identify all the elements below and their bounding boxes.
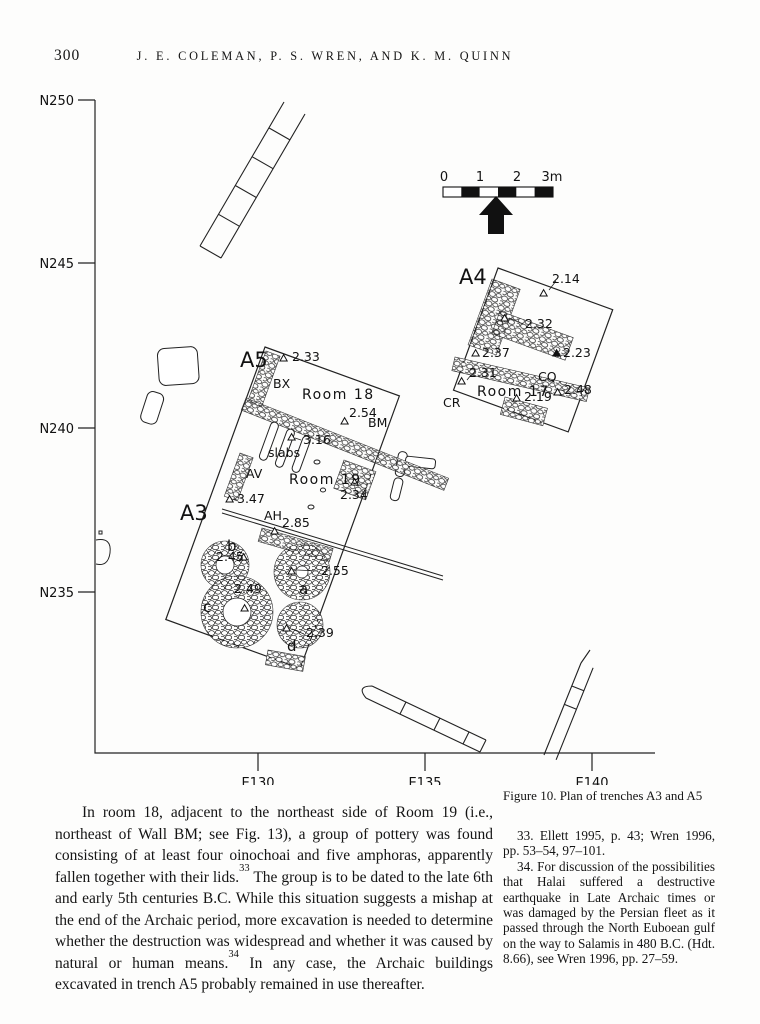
label-wall-cr: CR	[443, 395, 461, 410]
elevation-3.16: 3.16	[303, 432, 331, 447]
elevation-2.49: 2.49	[234, 581, 262, 596]
trench-a5-walls	[224, 351, 448, 562]
north-arrow-icon	[479, 196, 513, 234]
scale-2: 2	[513, 170, 521, 185]
label-wall-av: AV	[246, 466, 263, 481]
elevation-2.54: 2.54	[349, 405, 377, 420]
axis-label-n235: N235	[39, 586, 74, 601]
label-wall-cq: CQ	[538, 369, 557, 384]
body-paragraph: In room 18, adjacent to the northeast si…	[55, 802, 493, 996]
label-room-18: Room 18	[302, 387, 375, 403]
label-room-19: Room 19	[289, 472, 362, 488]
scale-3m: 3m	[542, 170, 563, 185]
wall-blocks-north	[200, 102, 305, 258]
baulk-mark	[96, 531, 110, 565]
elevation-2.45: 2.45	[216, 549, 244, 564]
axis-label-e135: E135	[408, 776, 441, 785]
axis-label-n250: N250	[39, 94, 74, 109]
axis-label-e140: E140	[575, 776, 608, 785]
footnote-ref-33: 33	[239, 863, 250, 874]
elevation-2.85: 2.85	[282, 515, 310, 530]
footnotes: 33. Ellett 1995, p. 43; Wren 1996, pp. 5…	[503, 828, 715, 967]
footnote-34: 34. For discussion of the possibilities …	[503, 859, 715, 967]
footnote-ref-34: 34	[228, 949, 239, 960]
footnote-33: 33. Ellett 1995, p. 43; Wren 1996, pp. 5…	[503, 828, 715, 859]
elevation-2.19: 2.19	[524, 389, 552, 404]
label-feature-d: d	[287, 637, 297, 655]
axis-label-n245: N245	[39, 257, 74, 272]
elevation-2.55: 2.55	[321, 563, 349, 578]
page: 300 J. E. COLEMAN, P. S. WREN, AND K. M.…	[0, 0, 760, 1024]
label-feature-c: c	[203, 598, 211, 616]
scale-bar: 0 1 2 3m	[440, 170, 563, 197]
plan-figure: N250 N245 N240 N235 E130 E135 E140 0 1 2…	[0, 0, 760, 785]
label-trench-a5: A5	[240, 348, 268, 372]
label-trench-a3: A3	[180, 501, 208, 525]
scale-0: 0	[440, 170, 448, 185]
elevation-2.23: 2.23	[563, 345, 591, 360]
plan-axes	[78, 100, 655, 771]
label-slabs: slabs	[268, 445, 300, 460]
scale-1: 1	[476, 170, 484, 185]
wall-blocks-south	[362, 650, 593, 760]
elevation-2.39: 2.39	[306, 625, 334, 640]
label-trench-a4: A4	[459, 265, 487, 289]
label-wall-bx: BX	[273, 376, 291, 391]
label-feature-a: a	[299, 580, 308, 598]
axis-label-e130: E130	[241, 776, 274, 785]
elevation-2.14: 2.14	[552, 271, 580, 286]
elevation-3.47: 3.47	[237, 491, 265, 506]
elevation-2.31: 2.31	[469, 365, 497, 380]
label-wall-ah: AH	[264, 508, 282, 523]
elevation-2.33: 2.33	[292, 349, 320, 364]
figure-caption: Figure 10. Plan of trenches A3 and A5	[503, 788, 702, 804]
elevation-2.32: 2.32	[525, 316, 553, 331]
elevation-2.37: 2.37	[482, 345, 510, 360]
axis-label-n240: N240	[39, 422, 74, 437]
loose-stones-west	[139, 346, 199, 425]
elevation-2.48: 2.48	[564, 382, 592, 397]
elevation-2.34: 2.34	[340, 487, 368, 502]
